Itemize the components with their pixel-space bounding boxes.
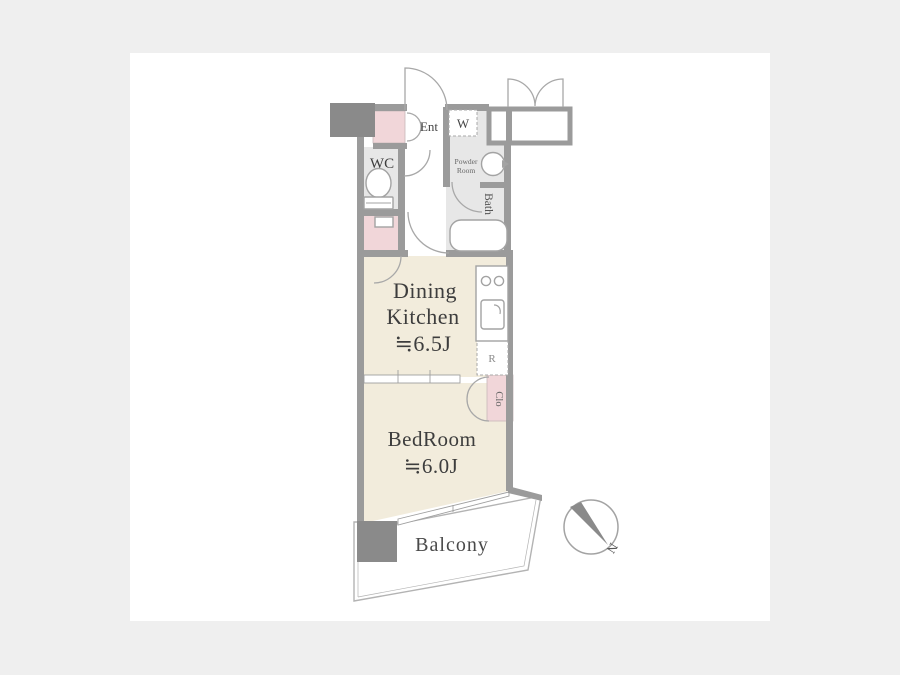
entrance-label: Ent [420,119,438,134]
refrigerator-label: R [488,353,496,365]
closet-shelf [375,217,393,227]
floorplan-image: N Ent W WC Powder Room Bath Dining Kitch… [0,0,900,675]
powder-room-label-line1: Powder [455,157,478,166]
balcony-label: Balcony [415,534,489,556]
dining-kitchen-label-line1: Dining [393,278,457,303]
closet-label: Clo [493,391,504,406]
shoe-cabinet [373,111,405,143]
upper-left-block [330,103,375,137]
bath-label: Bath [482,193,494,215]
stove-burner-icon [494,276,503,285]
wc-label: WC [370,156,394,172]
bedroom-label: BedRoom [388,427,477,451]
entry-alcove [489,109,570,143]
lower-left-block [357,521,397,562]
washer-label: W [457,116,470,131]
toilet-icon [364,169,393,210]
dining-kitchen-label-line2: Kitchen [386,304,459,329]
kitchen-sink-icon [481,300,504,329]
bathtub-icon [450,220,507,251]
stove-burner-icon [481,276,490,285]
dining-kitchen-size-label: ≒6.5J [395,331,452,356]
kitchen-counter [476,266,508,341]
powder-room-label-line2: Room [457,166,476,175]
bedroom-size-label: ≒6.0J [404,454,459,478]
floorplan-canvas: N Ent W WC Powder Room Bath Dining Kitch… [0,0,900,675]
